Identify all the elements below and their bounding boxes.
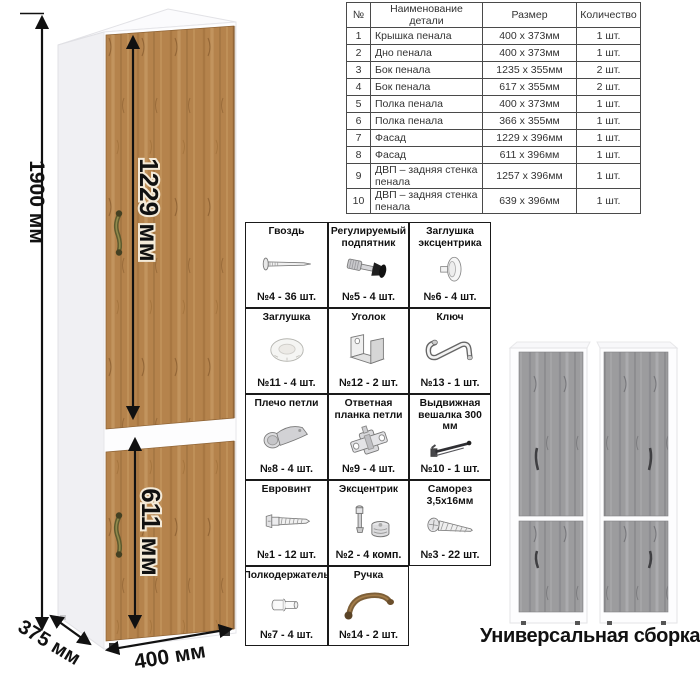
hardware-count: №8 - 4 шт. xyxy=(260,463,313,479)
nail-icon xyxy=(255,247,319,281)
table-row: 6Полка пенала366 х 355мм1 шт. xyxy=(347,113,641,130)
table-cell: Дно пенала xyxy=(371,45,483,62)
table-cell: 1 xyxy=(347,28,371,45)
table-row: 9ДВП – задняя стенка пенала1257 х 396мм1… xyxy=(347,164,641,189)
euro-screw-icon xyxy=(255,506,319,538)
col-header: Количество xyxy=(577,3,641,28)
hardware-item: Полкодержатель №7 - 4 шт. xyxy=(245,566,328,646)
hardware-count: №9 - 4 шт. xyxy=(342,463,395,479)
table-row: 1Крышка пенала400 х 373мм1 шт. xyxy=(347,28,641,45)
table-cell: 1 шт. xyxy=(577,45,641,62)
hardware-title: Ответная планка петли xyxy=(329,395,408,421)
mini-cabinet-left xyxy=(510,342,590,625)
hardware-title: Заглушка эксцентрика xyxy=(410,223,490,249)
table-row: 8Фасад611 х 396мм1 шт. xyxy=(347,147,641,164)
hardware-item: Регулируемый подпятник №5 - 4 шт. xyxy=(328,222,409,308)
hardware-count: №7 - 4 шт. xyxy=(260,629,313,645)
table-cell: Крышка пенала xyxy=(371,28,483,45)
table-cell: Бок пенала xyxy=(371,62,483,79)
self-tapping-screw-icon xyxy=(418,512,482,544)
hardware-title: Ключ xyxy=(435,309,464,324)
hardware-item: Саморез 3,5х16мм №3 - 22 шт. xyxy=(409,480,491,566)
table-cell: ДВП – задняя стенка пенала xyxy=(371,164,483,189)
table-cell: 1 шт. xyxy=(577,189,641,214)
table-cell: 1 шт. xyxy=(577,147,641,164)
shelf-pin-icon xyxy=(255,590,319,620)
upper-door xyxy=(106,26,234,429)
table-row: 3Бок пенала1235 х 355мм2 шт. xyxy=(347,62,641,79)
table-cell: 2 шт. xyxy=(577,79,641,96)
hardware-count: №1 - 12 шт. xyxy=(257,549,316,565)
table-cell: Полка пенала xyxy=(371,96,483,113)
cabinet-illustration: 1900 мм 1229 мм 611 мм 375 мм 400 мм xyxy=(0,0,245,683)
hardware-item: Ключ №13 - 1 шт. xyxy=(409,308,491,394)
hardware-item: Ручка №14 - 2 шт. xyxy=(328,566,409,646)
hardware-item: Заглушка №11 - 4 шт. xyxy=(245,308,328,394)
upper-door-label: 1229 мм xyxy=(134,158,164,262)
hardware-count: №6 - 4 шт. xyxy=(424,291,477,307)
hinge-arm-icon xyxy=(255,419,319,453)
table-row: 10ДВП – задняя стенка пенала639 х 396мм1… xyxy=(347,189,641,214)
adjustable-foot-icon xyxy=(337,253,401,287)
table-cell: 400 х 373мм xyxy=(483,28,577,45)
hardware-count: №2 - 4 комп. xyxy=(336,549,402,565)
table-cell: Полка пенала xyxy=(371,113,483,130)
hardware-title: Уголок xyxy=(350,309,386,324)
table-cell: 9 xyxy=(347,164,371,189)
table-cell: 639 х 396мм xyxy=(483,189,577,214)
universal-assembly-caption: Универсальная сборка. xyxy=(480,625,700,648)
table-cell: Бок пенала xyxy=(371,79,483,96)
hex-key-icon xyxy=(418,332,482,368)
hinge-plate-icon xyxy=(337,424,401,460)
col-header: Наименование детали xyxy=(371,3,483,28)
table-cell: 1235 х 355мм xyxy=(483,62,577,79)
table-cell: 4 xyxy=(347,79,371,96)
table-row: 5Полка пенала400 х 373мм1 шт. xyxy=(347,96,641,113)
hardware-item: Уголок №12 - 2 шт. xyxy=(328,308,409,394)
table-cell: 3 xyxy=(347,62,371,79)
table-row: 7Фасад1229 х 396мм1 шт. xyxy=(347,130,641,147)
table-cell: 1 шт. xyxy=(577,96,641,113)
table-cell: 1 шт. xyxy=(577,28,641,45)
col-header: Размер xyxy=(483,3,577,28)
hardware-title: Регулируемый подпятник xyxy=(329,223,408,249)
hardware-count: №5 - 4 шт. xyxy=(342,291,395,307)
hardware-title: Выдвижная вешалка 300 мм xyxy=(410,395,490,433)
handle-icon xyxy=(337,584,401,626)
universal-assembly-illustration xyxy=(495,336,700,630)
table-header-row: № Наименование детали Размер Количество xyxy=(347,3,641,28)
table-cell: 2 шт. xyxy=(577,62,641,79)
hardware-title: Эксцентрик xyxy=(338,481,399,496)
hardware-title: Заглушка xyxy=(262,309,312,324)
table-cell: 5 xyxy=(347,96,371,113)
hardware-title: Ручка xyxy=(353,567,384,582)
table-cell: 400 х 373мм xyxy=(483,45,577,62)
plug-icon xyxy=(255,332,319,368)
hardware-count: №12 - 2 шт. xyxy=(339,377,398,393)
table-cell: Фасад xyxy=(371,147,483,164)
table-cell: 10 xyxy=(347,189,371,214)
hardware-item: Гвоздь №4 - 36 шт. xyxy=(245,222,328,308)
pullout-hanger-icon xyxy=(418,435,482,461)
table-row: 2Дно пенала400 х 373мм1 шт. xyxy=(347,45,641,62)
hardware-count: №3 - 22 шт. xyxy=(421,549,480,565)
hardware-title: Полкодержатель xyxy=(245,567,328,582)
hardware-title: Саморез 3,5х16мм xyxy=(410,481,490,507)
hardware-item: Плечо петли №8 - 4 шт. xyxy=(245,394,328,480)
corner-bracket-icon xyxy=(337,332,401,368)
mini-cabinet-right xyxy=(597,342,677,625)
hardware-grid: Гвоздь №4 - 36 шт. Регулируемый подпятни… xyxy=(245,222,491,646)
table-cell: 400 х 373мм xyxy=(483,96,577,113)
hardware-title: Евровинт xyxy=(261,481,313,496)
table-cell: Фасад xyxy=(371,130,483,147)
lower-door-label: 611 мм xyxy=(136,488,166,576)
hardware-count: №14 - 2 шт. xyxy=(339,629,398,645)
hardware-item: Эксцентрик №2 - 4 комп. xyxy=(328,480,409,566)
hardware-item: Ответная планка петли №9 - 4 шт. xyxy=(328,394,409,480)
table-cell: 1257 х 396мм xyxy=(483,164,577,189)
lower-door xyxy=(106,441,234,641)
hardware-count: №10 - 1 шт. xyxy=(421,463,480,479)
col-header: № xyxy=(347,3,371,28)
table-cell: 1 шт. xyxy=(577,130,641,147)
height-label: 1900 мм xyxy=(25,160,48,244)
table-cell: 7 xyxy=(347,130,371,147)
hardware-item: Заглушка эксцентрика №6 - 4 шт. xyxy=(409,222,491,308)
table-cell: 611 х 396мм xyxy=(483,147,577,164)
table-cell: 1 шт. xyxy=(577,113,641,130)
hardware-title: Гвоздь xyxy=(268,223,306,238)
hardware-count: №11 - 4 шт. xyxy=(257,377,315,393)
table-cell: 2 xyxy=(347,45,371,62)
hardware-item: Выдвижная вешалка 300 мм №10 - 1 шт. xyxy=(409,394,491,480)
table-cell: 366 х 355мм xyxy=(483,113,577,130)
dimension-height: 1900 мм xyxy=(20,14,48,630)
cam-lock-icon xyxy=(337,503,401,541)
hardware-grid-empty-cell xyxy=(409,566,491,646)
cam-cover-icon xyxy=(418,253,482,287)
table-cell: 617 х 355мм xyxy=(483,79,577,96)
table-cell: 6 xyxy=(347,113,371,130)
hardware-title: Плечо петли xyxy=(254,395,320,410)
table-cell: 1 шт. xyxy=(577,164,641,189)
table-cell: ДВП – задняя стенка пенала xyxy=(371,189,483,214)
hardware-item: Евровинт №1 - 12 шт. xyxy=(245,480,328,566)
parts-table: № Наименование детали Размер Количество … xyxy=(346,2,641,214)
table-cell: 1229 х 396мм xyxy=(483,130,577,147)
table-cell: 8 xyxy=(347,147,371,164)
assembly-sheet: 1900 мм 1229 мм 611 мм 375 мм 400 мм № Н… xyxy=(0,0,700,683)
table-row: 4Бок пенала617 х 355мм2 шт. xyxy=(347,79,641,96)
hardware-count: №13 - 1 шт. xyxy=(421,377,480,393)
hardware-count: №4 - 36 шт. xyxy=(257,291,316,307)
